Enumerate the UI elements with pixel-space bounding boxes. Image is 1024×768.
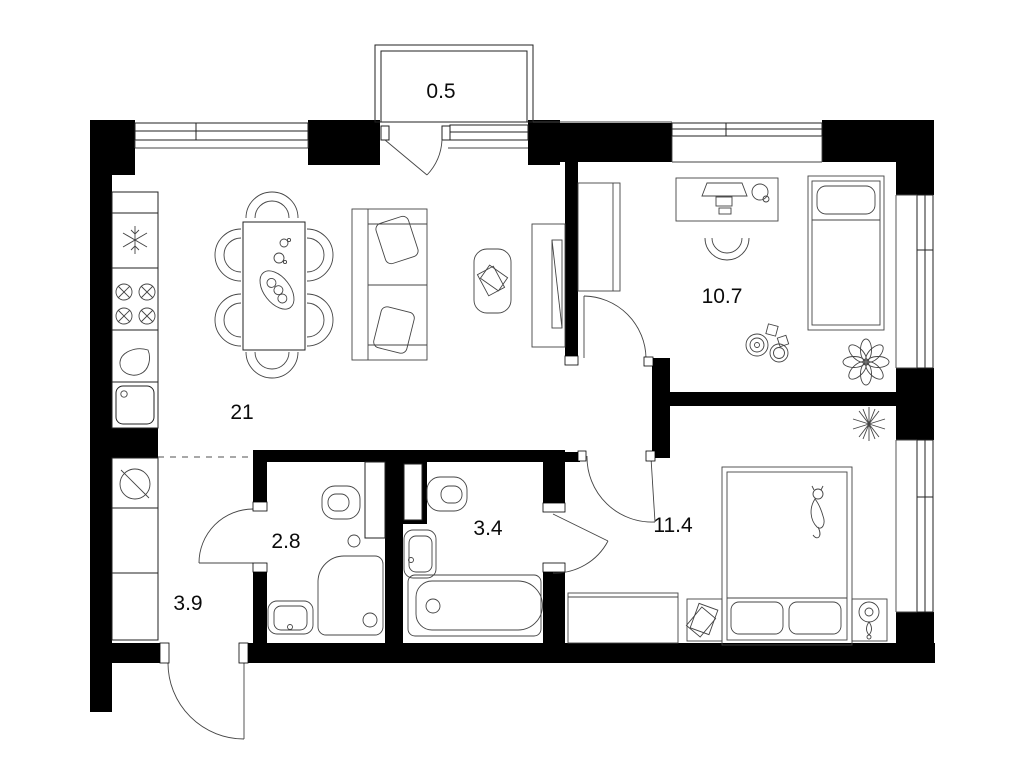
child-bedroom-furniture — [578, 176, 889, 385]
toys-icon — [746, 324, 789, 362]
fridge-icon — [123, 226, 147, 254]
pillow-icon — [374, 215, 419, 265]
pillow-icon — [731, 602, 783, 634]
wardrobe-icon — [578, 183, 620, 291]
room-label-kitchen-living: 21 — [230, 401, 253, 424]
room-label-hallway: 3.9 — [173, 592, 202, 615]
chair-icon — [246, 192, 298, 218]
room-label-toilet-room: 2.8 — [271, 530, 300, 553]
dresser-icon — [568, 593, 678, 643]
single-bed-icon — [808, 176, 884, 330]
dining-set — [215, 192, 333, 378]
closet — [112, 573, 158, 640]
entry-door-swing-icon — [168, 663, 244, 739]
coffee-table-icon — [474, 249, 511, 313]
lamp-icon — [859, 602, 879, 622]
pillow-icon — [789, 602, 841, 634]
sofa-icon — [352, 209, 427, 360]
nightstand-icon — [686, 599, 722, 641]
plant-icon — [843, 339, 889, 385]
table-decor — [253, 238, 301, 315]
closet — [112, 508, 158, 573]
chair-icon — [246, 352, 298, 378]
bedroom-furniture — [568, 407, 887, 645]
child-bedroom-door-swing-icon — [584, 296, 646, 358]
cat-icon — [811, 486, 824, 538]
headphones-icon — [752, 184, 768, 200]
monitor-icon — [702, 183, 747, 196]
room-label-bathroom: 3.4 — [473, 517, 503, 540]
right-window-lower-icon — [896, 440, 933, 612]
balcony-door-swing-icon — [385, 140, 442, 175]
windows — [135, 122, 933, 612]
right-window-upper-icon — [896, 195, 933, 368]
dining-table-icon — [243, 222, 305, 350]
child-bedroom-window-icon — [672, 123, 822, 162]
nightstand-icon — [852, 599, 887, 641]
chair-icon — [307, 229, 333, 281]
bathtub-icon — [408, 575, 543, 636]
toilet-icon — [322, 486, 360, 519]
floor-plan-page: 0.5 21 10.7 2.8 3.4 11.4 3.9 — [0, 0, 1024, 768]
tv-stand — [532, 224, 565, 347]
office-chair-icon — [705, 238, 749, 260]
hallway-closets — [112, 458, 158, 640]
tv-console — [532, 224, 565, 347]
kitchen-area — [112, 192, 158, 428]
washing-machine-icon — [120, 469, 150, 499]
pillow-icon — [817, 186, 875, 214]
room-label-balcony: 0.5 — [426, 80, 455, 103]
washbasin-icon — [404, 530, 436, 578]
toilet-room-door-swing-icon — [199, 509, 253, 563]
kitchen-window-icon — [135, 123, 308, 148]
shower-icon — [318, 556, 383, 635]
drop-icon — [120, 349, 150, 376]
chair-icon — [215, 294, 241, 346]
pillow-icon — [372, 306, 415, 355]
washbasin-icon — [268, 601, 313, 634]
desk-icon — [676, 178, 778, 221]
stove-icon — [116, 284, 155, 324]
plant-icon — [853, 407, 885, 441]
floor-plan: 0.5 21 10.7 2.8 3.4 11.4 3.9 — [0, 0, 1024, 768]
chair-icon — [215, 229, 241, 281]
chair-icon — [307, 294, 333, 346]
kitchen-sink-icon — [116, 386, 154, 424]
room-label-child-bedroom: 10.7 — [702, 285, 743, 308]
corridor-door-swing-icon — [587, 456, 655, 522]
sprig-icon — [867, 622, 872, 635]
toilet-icon — [427, 477, 467, 511]
accessory-icon — [348, 535, 360, 547]
balcony-door-window-icon — [381, 125, 528, 148]
double-bed-icon — [722, 467, 852, 645]
washing-machine-cabinet — [112, 458, 158, 508]
room-label-bedroom: 11.4 — [653, 514, 693, 537]
